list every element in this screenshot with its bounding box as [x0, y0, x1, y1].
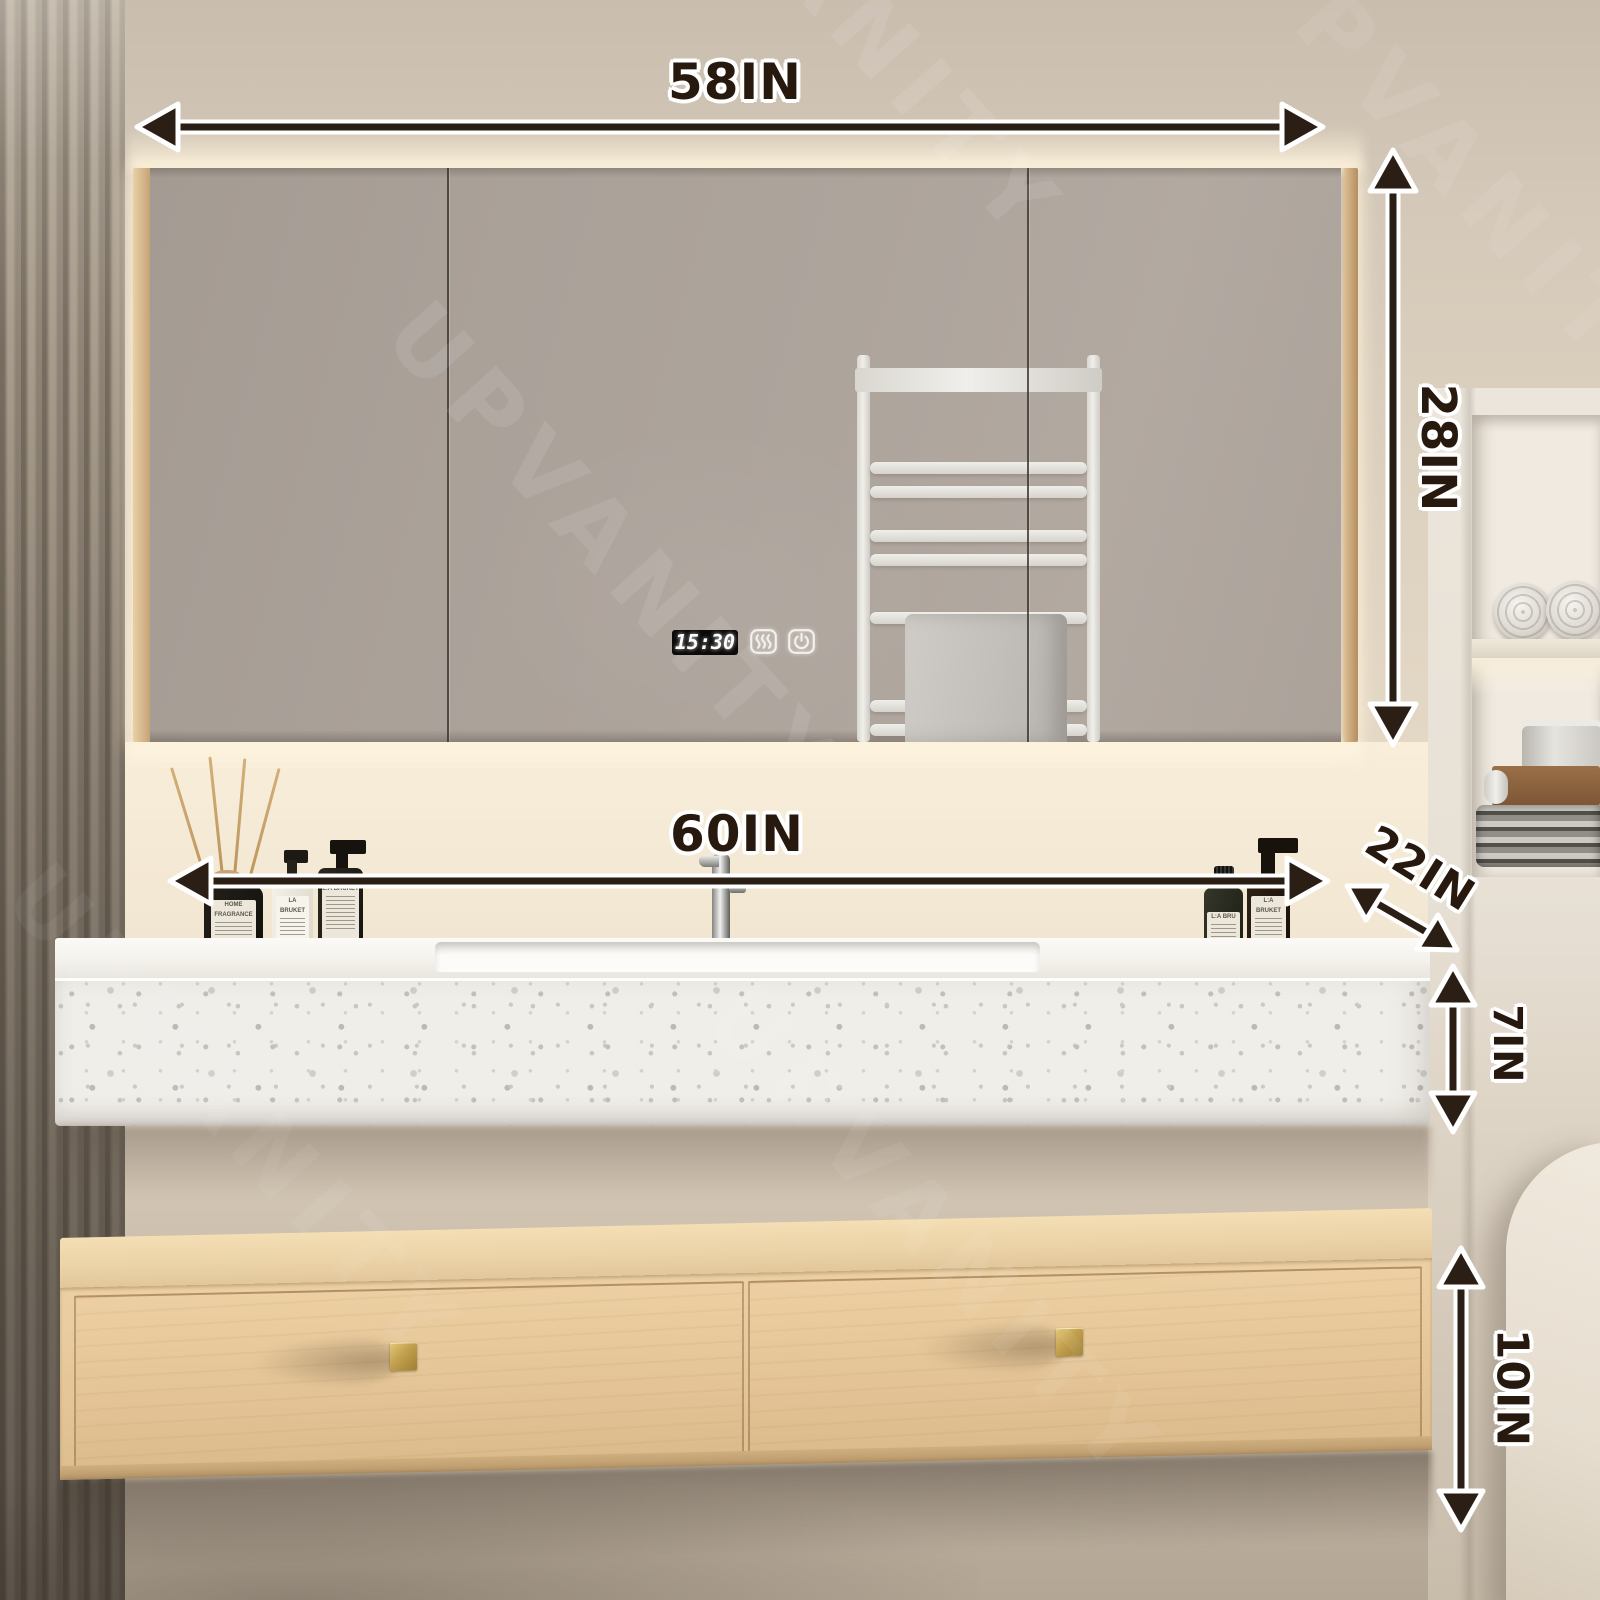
dim-label-vanity-width: 60IN: [670, 805, 804, 863]
towel-warmer-top-bar: [855, 368, 1102, 392]
bathroom-vanity-product-image: UPVANITY 15:30: [0, 0, 1600, 1600]
diffuser-reed: [244, 768, 281, 894]
dim-label-drawer-unit-height: 10IN: [1487, 1329, 1538, 1447]
countertop-wall-shadow: [58, 1126, 1430, 1198]
faucet: [697, 850, 749, 950]
label-fineprint: [1211, 924, 1236, 938]
towel-warmer-post-left: [857, 355, 870, 742]
niche-jar: [1522, 720, 1600, 768]
drawer-knob-right[interactable]: [1056, 1328, 1083, 1357]
folded-towels: [1476, 805, 1600, 867]
rolled-towel: [1546, 581, 1600, 639]
mirror-doors: UPVANITY: [150, 168, 1341, 742]
mirror-door-seam: [447, 168, 449, 742]
hanging-towel: [905, 614, 1067, 742]
drawer-right[interactable]: [748, 1266, 1422, 1455]
drawer-left[interactable]: [74, 1281, 744, 1470]
label-fineprint: [326, 896, 355, 930]
rolled-towel: [1494, 583, 1552, 641]
label-fineprint: [280, 918, 305, 936]
drawer-knob-left[interactable]: [390, 1342, 417, 1371]
small-pump-stem: [287, 860, 297, 882]
floor-shadow-left: [0, 1470, 980, 1600]
diffuser-reed: [208, 757, 225, 887]
backlight-glow-top: [128, 126, 1363, 172]
wall-niche: [1472, 415, 1600, 877]
diffuser-reed: [170, 767, 211, 892]
niche-wood-box: [1492, 766, 1600, 806]
niche-rolled-cloth: [1484, 770, 1508, 804]
towel-warmer-rung: [870, 486, 1087, 498]
pump-stem-right: [1261, 850, 1275, 880]
power-icon[interactable]: [788, 629, 815, 654]
faucet-handle: [729, 884, 746, 893]
mirror-sheen: [150, 168, 1341, 742]
towel-warmer-rung: [870, 530, 1087, 542]
dim-label-cabinet-width: 58IN: [668, 53, 802, 111]
sink-basin: [435, 942, 1040, 972]
niche-shelf-glow: [1472, 658, 1600, 696]
decor-left-group: HOME FRAGRANCE LA BRUKET L:A BRUKET: [170, 750, 400, 965]
towel-warmer-rung: [870, 554, 1087, 566]
towel-warmer-rung: [870, 462, 1087, 474]
dim-label-countertop-height: 7IN: [1484, 1004, 1530, 1083]
mirror-cabinet: UPVANITY 15:30: [133, 168, 1358, 742]
countertop-surface: [55, 938, 1430, 978]
towel-warmer-post-right: [1087, 355, 1100, 742]
mirror-door-seam: [1027, 168, 1029, 742]
diffuser-reed: [232, 758, 246, 888]
niche-shelf: [1472, 639, 1600, 658]
defog-icon[interactable]: [750, 629, 777, 654]
mirror-clock-display[interactable]: 15:30: [672, 630, 738, 655]
countertop-terrazzo-face: [55, 978, 1430, 1126]
faucet-body: [712, 854, 730, 946]
cabinet-wood-edge-right: [1341, 168, 1358, 742]
cabinet-wood-edge-left: [133, 168, 150, 742]
dim-label-cabinet-height: 28IN: [1410, 384, 1466, 513]
diffuser-cork: [214, 870, 240, 879]
